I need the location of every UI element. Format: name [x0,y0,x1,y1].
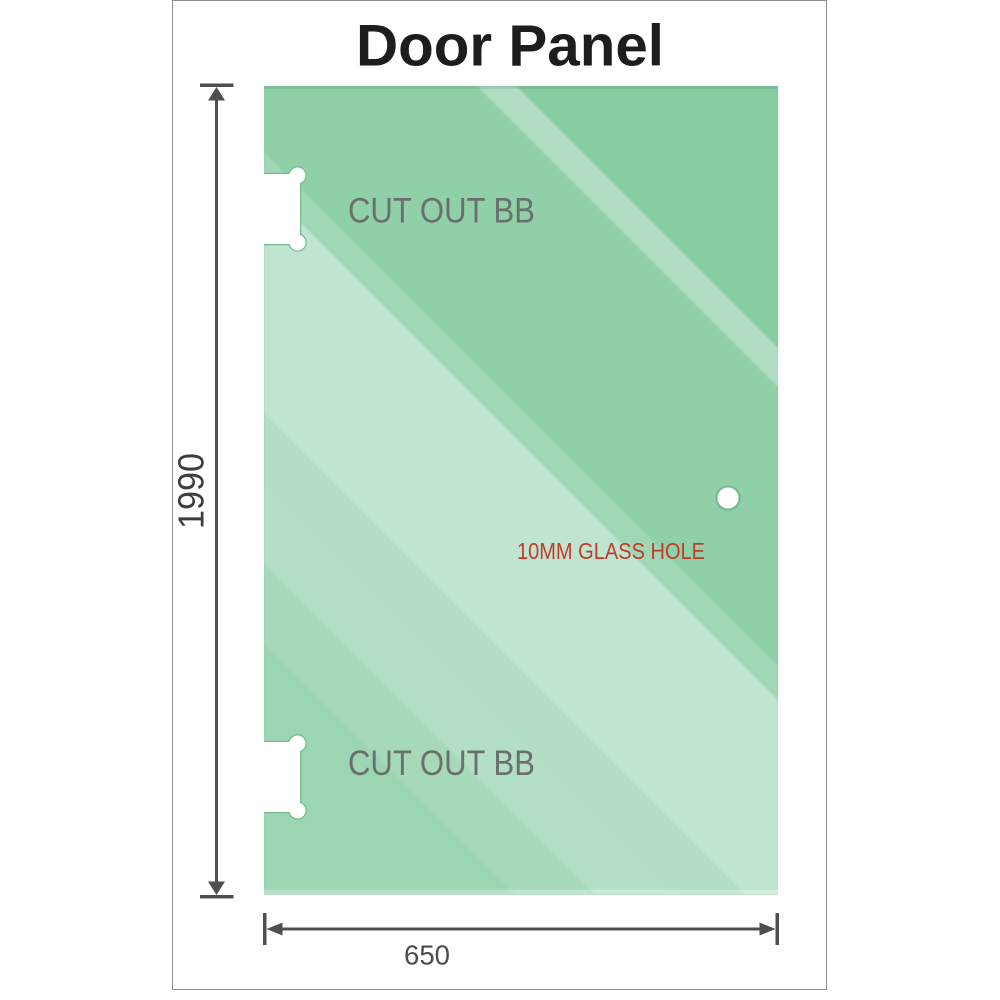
svg-text:1990: 1990 [171,453,212,529]
svg-text:CUT OUT BB: CUT OUT BB [348,743,535,783]
svg-text:Door Panel: Door Panel [356,14,664,79]
svg-text:650: 650 [404,940,450,971]
svg-text:CUT OUT BB: CUT OUT BB [348,191,535,231]
svg-text:10MM GLASS HOLE: 10MM GLASS HOLE [517,538,705,564]
